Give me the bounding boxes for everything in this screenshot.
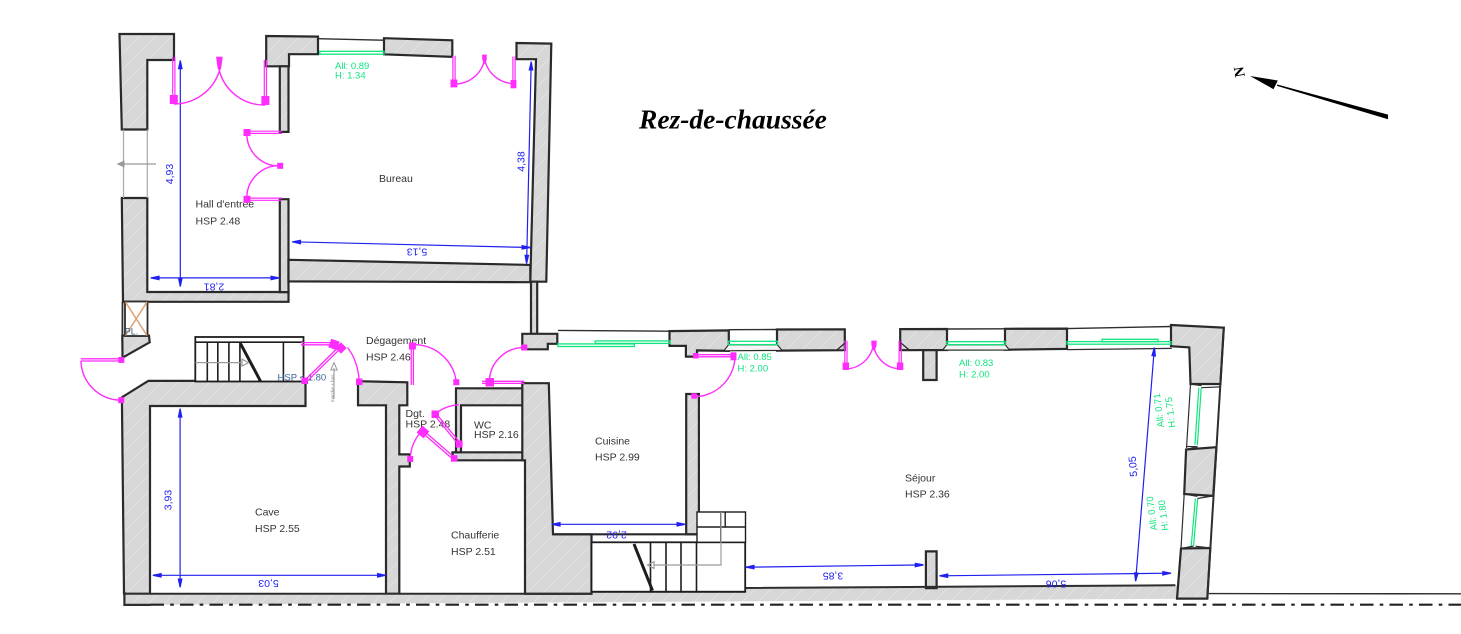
svg-text:H: 2.00: H: 2.00 bbox=[959, 370, 990, 381]
svg-text:5,06: 5,06 bbox=[1046, 578, 1067, 590]
svg-text:2,81: 2,81 bbox=[204, 281, 225, 293]
svg-text:3,93: 3,93 bbox=[163, 490, 175, 511]
svg-text:Rez-de-chaussée: Rez-de-chaussée bbox=[638, 104, 827, 135]
svg-text:Cuisine: Cuisine bbox=[595, 436, 630, 448]
svg-text:5,05: 5,05 bbox=[1127, 456, 1141, 477]
svg-text:H: 1.80: H: 1.80 bbox=[1157, 499, 1172, 531]
svg-text:HSP 2.16: HSP 2.16 bbox=[474, 429, 519, 441]
svg-text:5,03: 5,03 bbox=[258, 577, 279, 589]
svg-text:4,38: 4,38 bbox=[516, 151, 528, 172]
svg-text:HSP 2.46: HSP 2.46 bbox=[366, 352, 411, 364]
svg-text:marche + bas: marche + bas bbox=[330, 374, 335, 402]
svg-text:Bureau: Bureau bbox=[379, 173, 413, 185]
svg-text:Cave: Cave bbox=[255, 507, 280, 519]
svg-text:HSP 2.36: HSP 2.36 bbox=[905, 489, 950, 501]
svg-text:N: N bbox=[1231, 65, 1249, 79]
svg-text:All: 0.83: All: 0.83 bbox=[959, 358, 993, 369]
svg-text:HSP 2.48: HSP 2.48 bbox=[196, 216, 241, 228]
svg-text:H: 2.00: H: 2.00 bbox=[738, 364, 769, 375]
svg-text:All: 0.85: All: 0.85 bbox=[738, 352, 772, 363]
svg-text:5,13: 5,13 bbox=[407, 246, 428, 258]
svg-text:2,92: 2,92 bbox=[606, 529, 627, 541]
svg-text:HSP 2.99: HSP 2.99 bbox=[595, 452, 640, 464]
svg-text:HSP 2.51: HSP 2.51 bbox=[451, 546, 496, 558]
svg-text:4,93: 4,93 bbox=[164, 164, 176, 185]
svg-text:3,85: 3,85 bbox=[823, 570, 844, 582]
svg-text:HSP 2.48: HSP 2.48 bbox=[406, 419, 451, 431]
svg-text:Chaufferie: Chaufferie bbox=[451, 530, 499, 542]
svg-text:PL.: PL. bbox=[125, 327, 139, 337]
svg-text:H: 1.34: H: 1.34 bbox=[335, 71, 366, 82]
svg-text:H: 1.75: H: 1.75 bbox=[1164, 396, 1179, 428]
svg-text:Séjour: Séjour bbox=[905, 473, 936, 485]
svg-text:HSP 2.55: HSP 2.55 bbox=[255, 523, 300, 535]
